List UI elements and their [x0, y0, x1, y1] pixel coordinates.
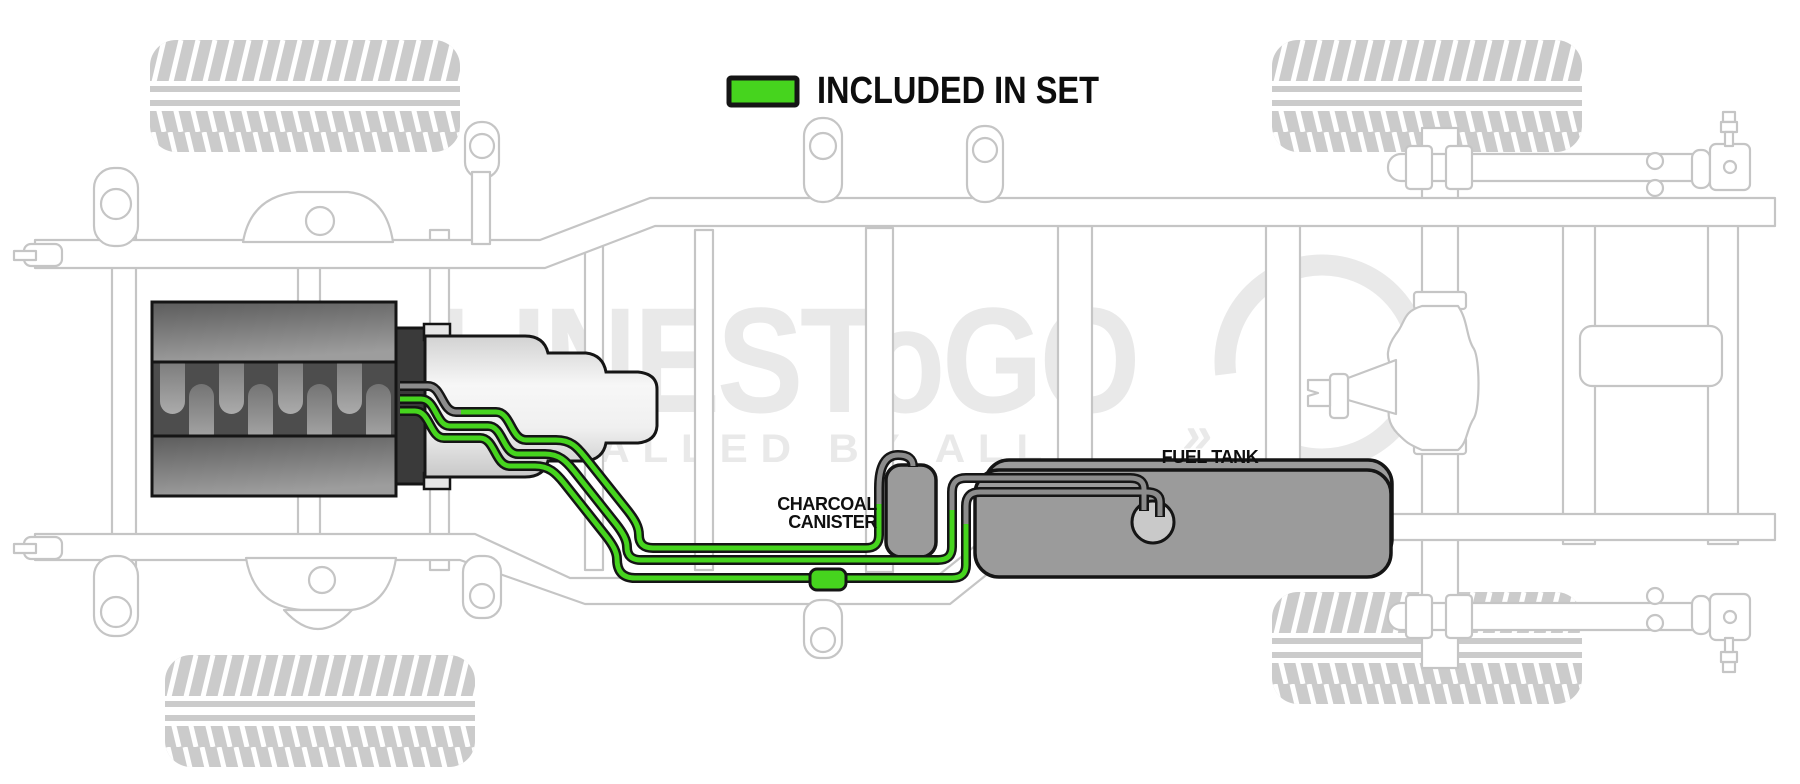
tire-front-right: [165, 655, 475, 767]
engine: [152, 302, 426, 496]
fuel-pump-module: [1132, 501, 1174, 543]
legend-label: INCLUDED IN SET: [817, 70, 1099, 112]
valve-cover-left: [152, 302, 396, 362]
fuel-tank-label: FUEL TANK: [1162, 447, 1259, 467]
inline-connector: [810, 569, 846, 590]
diagram-canvas: LINESToGO INSTALLED BY ALL »: [0, 0, 1800, 784]
valve-cover-right: [152, 436, 396, 496]
tow-hooks: [14, 244, 62, 559]
driveshaft-yoke: [1330, 374, 1348, 418]
pinion-snout: [1348, 360, 1396, 414]
differential: [1385, 306, 1479, 450]
charcoal-canister: [886, 465, 936, 557]
tire-front-left: [150, 40, 460, 152]
charcoal-canister-label-line1: CHARCOAL: [777, 494, 877, 514]
legend: INCLUDED IN SET: [729, 70, 1099, 112]
legend-swatch: [729, 78, 797, 105]
fuel-line-diagram: LINESToGO INSTALLED BY ALL »: [0, 0, 1800, 784]
spare-tire-crossmember-box: [1580, 326, 1722, 386]
fuel-tank-body: [975, 470, 1391, 577]
charcoal-canister-label-line2: CANISTER: [788, 512, 877, 532]
